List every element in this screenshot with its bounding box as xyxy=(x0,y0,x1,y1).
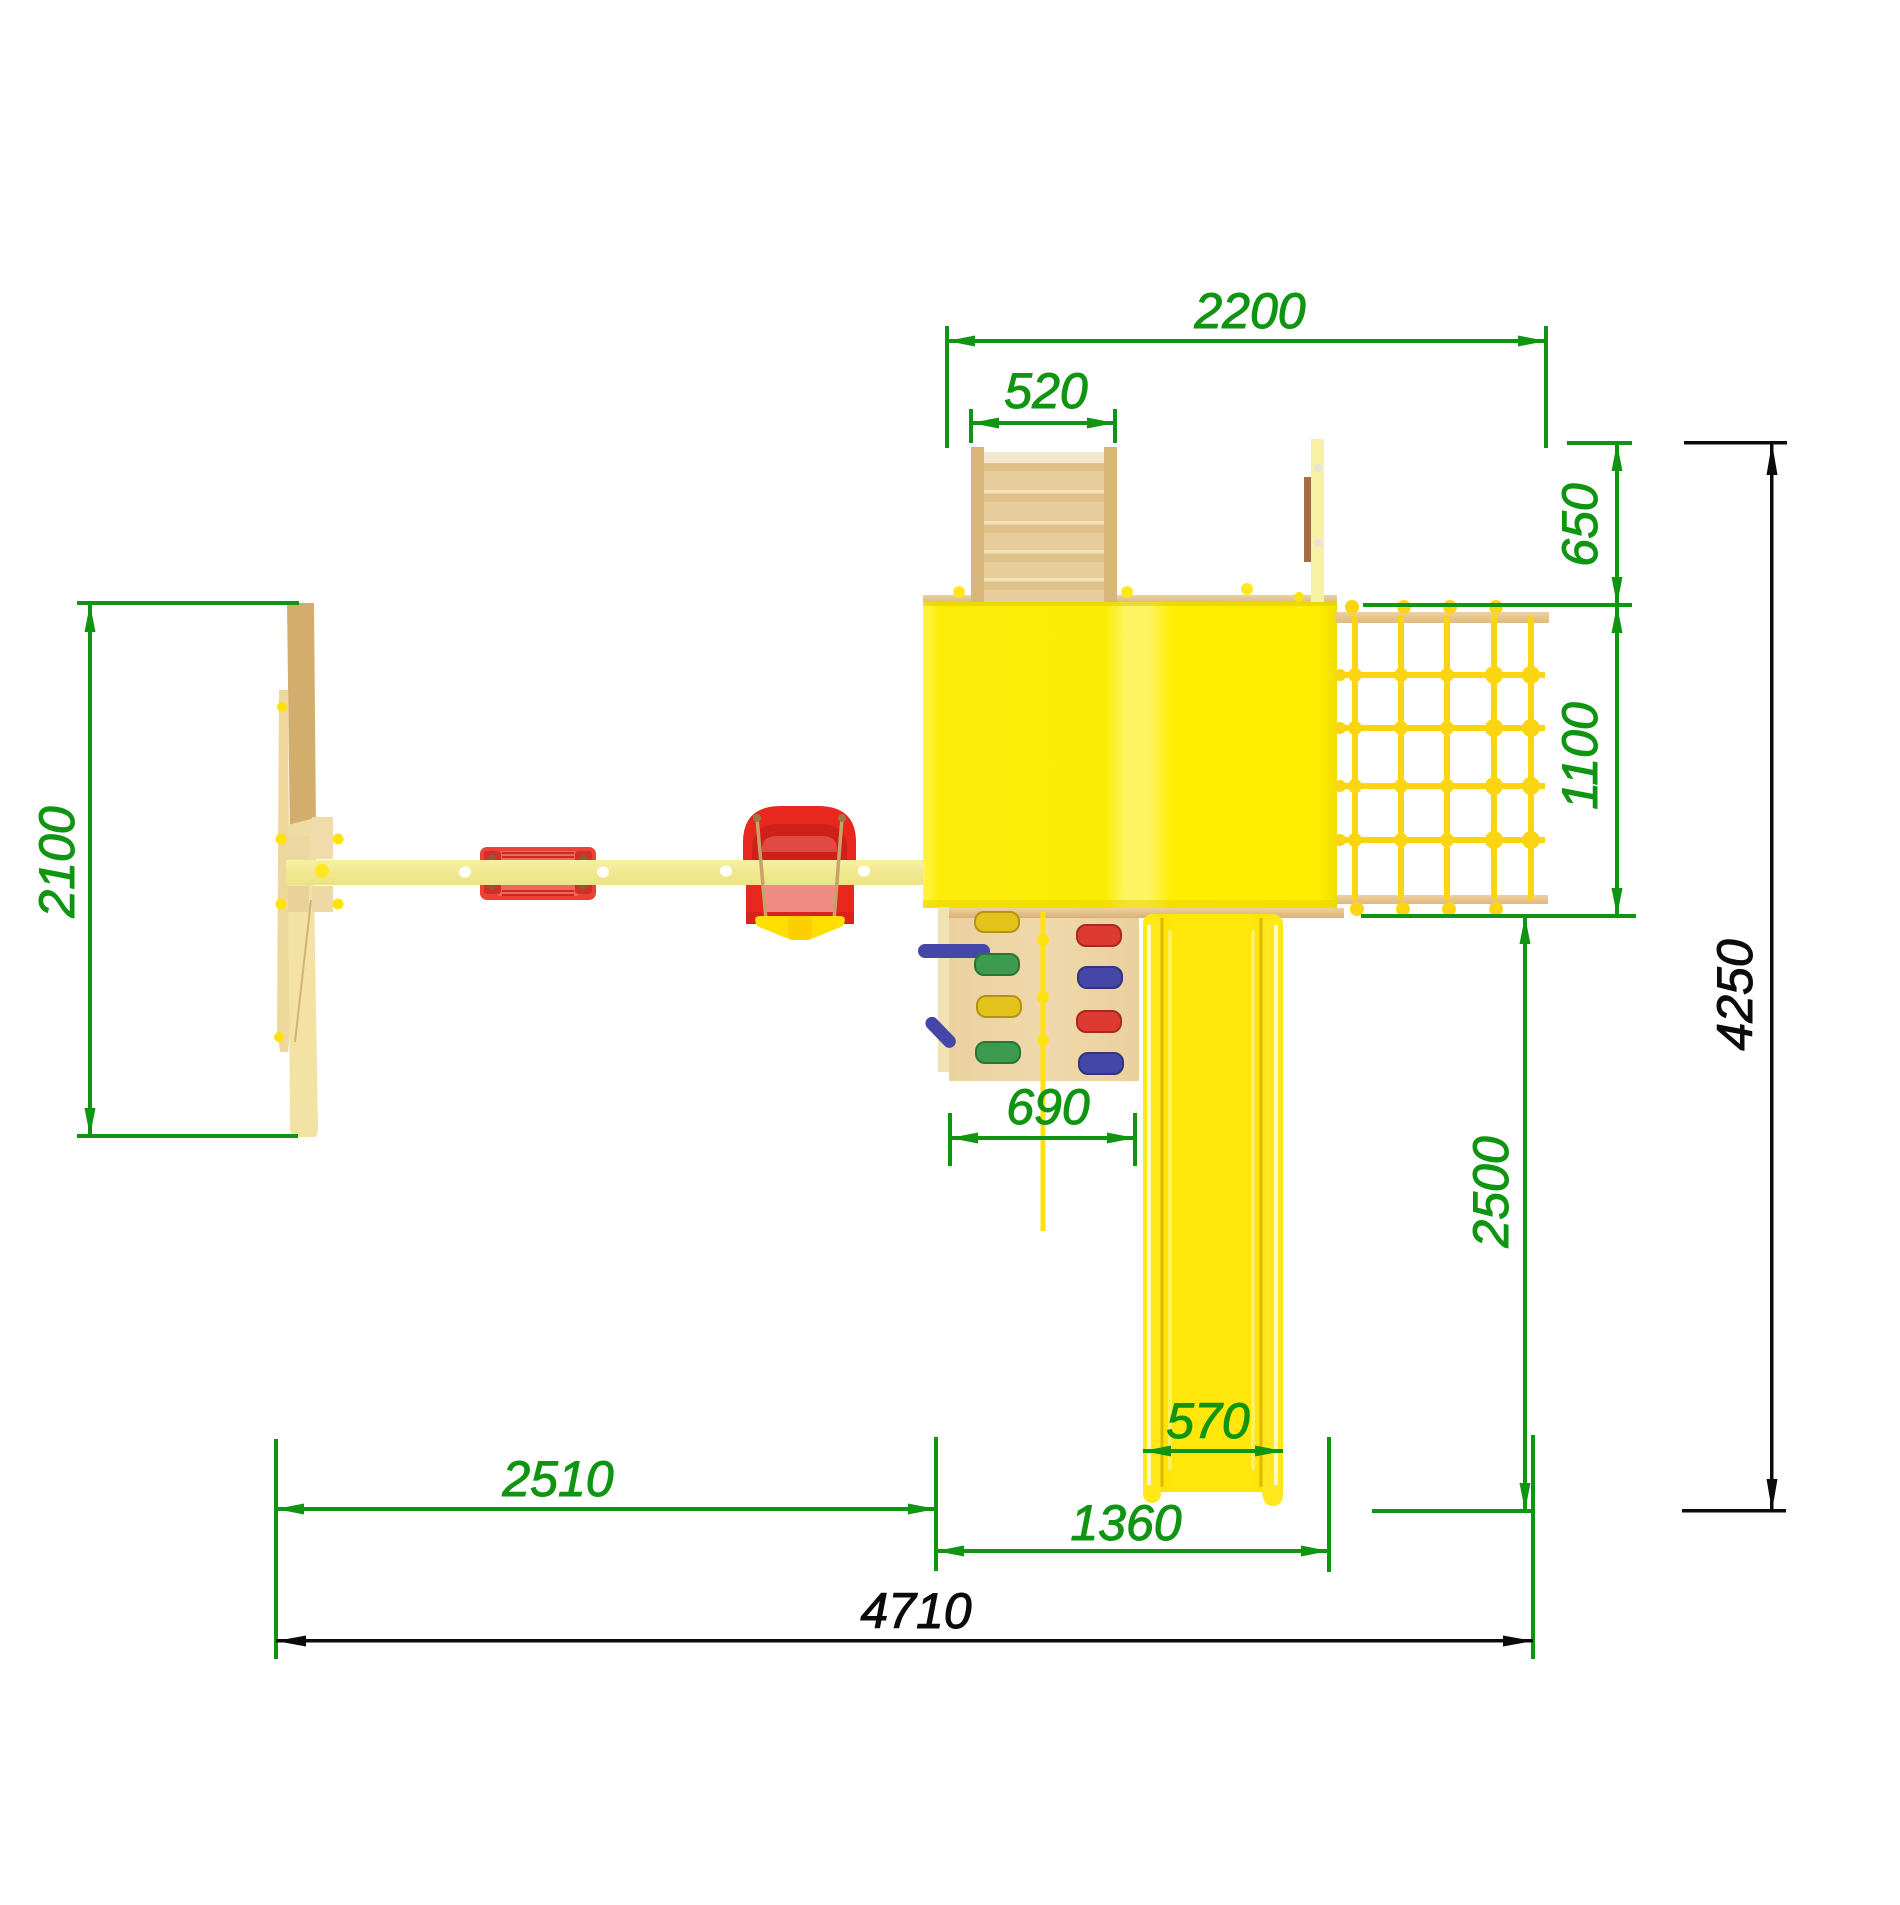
svg-text:4250: 4250 xyxy=(1707,939,1763,1050)
svg-text:1100: 1100 xyxy=(1552,702,1608,810)
svg-text:690: 690 xyxy=(1006,1079,1090,1135)
svg-text:520: 520 xyxy=(1004,363,1088,419)
svg-text:1360: 1360 xyxy=(1070,1495,1181,1551)
svg-text:2510: 2510 xyxy=(501,1451,613,1507)
svg-text:4710: 4710 xyxy=(860,1583,971,1639)
svg-text:2500: 2500 xyxy=(1463,1136,1519,1248)
svg-text:2100: 2100 xyxy=(29,806,85,918)
svg-text:2200: 2200 xyxy=(1193,283,1305,339)
svg-text:570: 570 xyxy=(1166,1393,1250,1449)
svg-text:650: 650 xyxy=(1552,483,1608,567)
